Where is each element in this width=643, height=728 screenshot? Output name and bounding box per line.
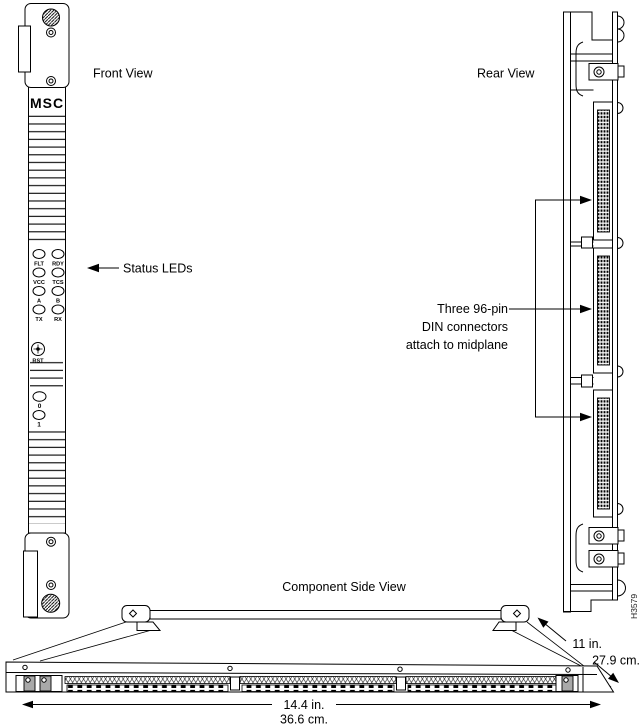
led-label: RDY: [52, 262, 64, 268]
status-leds-callout: Status LEDs: [87, 261, 192, 275]
width-cm-label: 36.6 cm.: [280, 713, 328, 727]
rear-view: [564, 12, 626, 612]
vent-slots-upper: [29, 113, 65, 244]
front-view: MSC FLT RDY VCC TCS A B TX RX RST: [19, 4, 70, 619]
bottom-screw-2-icon: [47, 581, 56, 590]
led-flt-icon: [33, 250, 45, 259]
port-0-label: 0: [38, 403, 42, 410]
connector-arrow-1-icon: [580, 196, 592, 205]
rail-tab-left: [137, 622, 160, 631]
connector-note-line-3: attach to midplane: [406, 338, 508, 352]
edge-left-bracket: [16, 676, 62, 692]
rear-top-screw-icon: [594, 67, 604, 77]
top-screw-icon: [47, 28, 56, 37]
projection-line: [13, 622, 126, 660]
depth-cm-label: 27.9 cm.: [592, 654, 640, 668]
top-captive-screw-icon: [43, 9, 60, 26]
depth-arrow-down-icon: [608, 673, 619, 683]
bottom-screw-icon: [47, 537, 56, 546]
front-top-card-edge: [19, 26, 31, 72]
led-label: TX: [35, 317, 42, 323]
led-label: A: [37, 299, 41, 305]
component-side-view: Component Side View: [6, 580, 614, 692]
faceplate-rail: [122, 606, 529, 631]
midplane-guides: [618, 16, 626, 596]
width-inches-label: 14.4 in.: [283, 698, 324, 712]
din-connector-3-pins: [598, 398, 610, 509]
rail-tab-right: [493, 622, 516, 631]
depth-arrow-up-icon: [538, 618, 549, 628]
diagram-canvas: MSC FLT RDY VCC TCS A B TX RX RST: [0, 0, 643, 728]
edge-divider: [397, 677, 406, 690]
din-connector-1-pins: [598, 110, 610, 232]
din-connector-2-pins: [598, 256, 610, 365]
rear-junction-clip-1: [582, 237, 593, 248]
edge-screw-icon: [23, 665, 27, 669]
led-label: FLT: [34, 262, 44, 268]
connector-note-line-2: DIN connectors: [422, 320, 508, 334]
vent-slots-mid: [30, 360, 63, 387]
connector-note-line-1: Three 96-pin: [437, 302, 508, 316]
bottom-captive-screw-icon: [42, 594, 60, 612]
vent-slots-lower: [29, 430, 65, 524]
top-screw-2-icon: [47, 77, 56, 86]
port-1-label: 1: [37, 422, 41, 429]
edge-divider: [231, 677, 240, 690]
rear-right-rail: [613, 12, 618, 600]
led-a-icon: [33, 287, 45, 296]
ejector-screw-icon: [42, 678, 46, 682]
connector-arrow-3-icon: [580, 413, 592, 422]
width-arrow-right-icon: [590, 701, 601, 708]
led-label: TCS: [52, 280, 63, 286]
led-vcc-icon: [33, 268, 45, 277]
led-tcs-icon: [52, 268, 64, 277]
ejector-screw-icon: [26, 678, 30, 682]
front-view-title: Front View: [93, 67, 153, 81]
edge-screw-icon: [566, 668, 570, 672]
din-connector-1: [594, 102, 613, 240]
component-view-title: Component Side View: [282, 580, 406, 594]
led-rx-icon: [52, 305, 64, 314]
hardware-diagram: MSC FLT RDY VCC TCS A B TX RX RST: [0, 0, 643, 728]
callout-arrow-icon: [87, 264, 99, 272]
din-connector-2: [594, 248, 613, 373]
edge-screw-icon: [398, 667, 402, 671]
ejector-screw-icon: [564, 678, 568, 682]
status-leds-label: Status LEDs: [123, 261, 192, 275]
connector-arrow-2-icon: [580, 305, 592, 314]
led-label: RX: [54, 317, 62, 323]
led-rdy-icon: [52, 250, 64, 259]
din-connector-3: [594, 390, 613, 517]
led-tx-icon: [33, 305, 45, 314]
rail-bar: [150, 611, 501, 620]
led-label: VCC: [33, 280, 45, 286]
width-dimension: 14.4 in. 36.6 cm.: [22, 698, 601, 727]
card-name-label: MSC: [30, 95, 64, 111]
led-b-icon: [52, 287, 64, 296]
front-bottom-card-edge: [24, 551, 38, 617]
rear-junction-clip-2: [582, 375, 593, 387]
rear-left-rail: [564, 12, 571, 612]
rear-bottom-screw-1-icon: [594, 531, 604, 541]
led-label: B: [56, 299, 60, 305]
rear-view-title: Rear View: [477, 67, 535, 81]
rear-bottom-screw-2-icon: [594, 554, 604, 564]
width-arrow-left-icon: [22, 701, 33, 708]
depth-inches-label: 11 in.: [572, 637, 602, 651]
board-edge-view: [6, 662, 614, 692]
figure-number: H3579: [629, 594, 639, 619]
edge-screw-icon: [228, 666, 232, 670]
